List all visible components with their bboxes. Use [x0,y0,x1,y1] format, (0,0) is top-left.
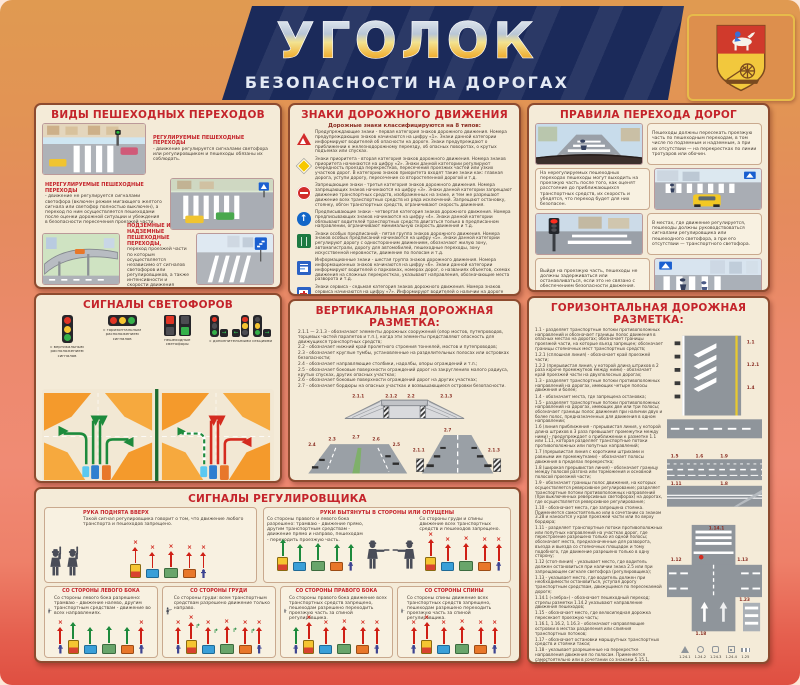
svg-text:1.11: 1.11 [671,481,682,487]
main-subtitle: БЕЗОПАСНОСТИ НА ДОРОГАХ [245,73,569,92]
rule-row-3: В местах, где движение регулируется, пеш… [535,213,762,255]
marking-diagram-intersection: 1.12 1.14.1 1.13 1.18 1.23 [667,518,762,642]
svg-text:2.6: 2.6 [372,436,380,441]
illustration-driver-view-crossing [535,123,643,165]
marking-diagram-lanes: 1.5 1.6 1.9 1.11 1.8 [667,449,762,515]
rule-row-4: Выйдя на проезжую часть, пешеходы не дол… [535,258,762,292]
controller-side-block: СО СТОРОНЫ СПИНЫ Со стороны спины движен… [397,586,511,658]
district-coat-of-arms [687,14,795,101]
sign-category-text: Знаки особых предписаний - пятая группа … [315,233,513,257]
vertical-marking-item: 2.4 - обозначает направляющие столбики, … [298,363,511,368]
horizontal-marking-item: 1.4 - обозначает места, где запрещена ос… [535,395,663,400]
legend-item: 1.24.1 [679,645,690,659]
traffic-controller-icon [401,596,405,626]
traffic-light-with-section-icon: ← [232,315,250,337]
rule-text-2: На нерегулируемых пешеходных переходах п… [535,168,650,210]
svg-text:1.23: 1.23 [739,597,750,603]
sign-icon-label [296,287,311,296]
svg-text:2.3: 2.3 [328,436,336,441]
panel-traffic-controller: СИГНАЛЫ РЕГУЛИРОВЩИКА РУКА ПОДНЯТА ВВЕРХ… [34,487,521,663]
vehicles-row [48,626,154,655]
marking-legend: 1.24.1 1.24.2 1.24.3 1.24.4 1.25 [667,645,762,659]
svg-text:1.14.1: 1.14.1 [709,526,724,532]
traffic-controller-figures [366,517,416,572]
crossing-text-unregulated: НЕРЕГУЛИРУЕМЫЕ ПЕШЕХОДНЫЕ ПЕРЕХОДЫ - дви… [42,178,166,230]
speed-bump-marking-icon [741,645,750,654]
rule-row-1: Пешеходы должны пересекать проезжую част… [535,123,762,165]
rule-text-3: В местах, где движение регулируется, пеш… [647,213,762,255]
block-text: Со стороны левого бока разрешено: трамва… [54,596,154,617]
disabled-marking-icon [727,645,736,654]
svg-text:1.2.1: 1.2.1 [747,362,759,368]
vertical-marking-list: 2.1.1 — 2.1.3 - обозначают элементы доро… [296,331,513,390]
traffic-controller-icon [48,596,52,626]
sign-icon-label [296,260,311,275]
svg-text:2.1.2: 2.1.2 [385,393,397,398]
coat-of-arms-icon [714,23,768,93]
sign-icon-label [296,234,311,249]
horizontal-marking-item: 1.2.2 (прерывистая линия, у которой длин… [535,364,663,378]
rule-row-2: На нерегулируемых пешеходных переходах п… [535,168,762,210]
traffic-controller-icon [366,538,390,572]
panel-title: ВИДЫ ПЕШЕХОДНЫХ ПЕРЕХОДОВ [42,109,274,121]
sign-icon [296,132,311,147]
panel-horizontal-marking: ГОРИЗОНТАЛЬНАЯ ДОРОЖНАЯ РАЗМЕТКА: 1.1 - … [527,296,770,664]
vertical-marking-item: 2.5 - обозначает боковые поверхности огр… [298,369,511,379]
vehicles-denied-row [419,543,507,572]
vertical-marking-item: 2.3 - обозначает круглые тумбы, установл… [298,352,511,362]
horizontal-marking-list: 1.1 - разделяет транспортные потоки прот… [535,328,663,664]
block-heading: СО СТОРОНЫ СПИНЫ [401,589,507,595]
horizontal-marking-item: 1.14.1 («зебра») - обозначает пешеходный… [535,596,663,610]
vehicles-row [401,626,507,655]
controller-side-block: СО СТОРОНЫ ПРАВОГО БОКА Со стороны право… [280,586,394,658]
block-text: Со стороны правого бока движение всех тр… [289,596,389,622]
horizontal-marking-item: 1.7 (прерывистая линия с короткими штрих… [535,450,663,464]
sign-category-row: Знаки приоритета - вторая категория знак… [296,158,513,182]
svg-text:2.1.1: 2.1.1 [413,447,425,452]
sign-category-row: Предписывающие знаки - четвертая категор… [296,211,513,230]
horizontal-marking-item: 1.3 - разделяет транспортные потоки прот… [535,379,663,393]
sign-category-text: Запрещающие знаки - третья категория зна… [315,184,513,208]
svg-text:2.4: 2.4 [308,442,316,447]
sign-icon-label [296,132,311,147]
legend-item: 1.24.2 [695,645,706,659]
pedestrian-lights-group: пешеходные светофоры [154,315,200,347]
block-text: Со стороны спины движение всех транспорт… [407,596,507,622]
controller-side-block: СО СТОРОНЫ ЛЕВОГО БОКА Со стороны левого… [44,586,158,658]
sign-category-text: Предупреждающие знаки - первая категория… [315,131,513,155]
illustration-red-light-view [535,213,643,255]
svg-text:1.8: 1.8 [720,481,728,487]
crossing-description: переход проезжей части по которым осущес… [127,247,189,289]
traffic-controller-icon [392,538,416,572]
sign-category-row: Знаки сервиса - седьмая категория знаков… [296,286,513,296]
panel-title: СИГНАЛЫ РЕГУЛИРОВЩИКА [42,493,513,505]
sign-category-row: Предупреждающие знаки - первая категория… [296,131,513,155]
marking-diagram-chevrons: 1.1 1.2.1 1.4 [667,328,762,446]
traffic-light-vertical-group: с вертикальным расположением сигналов [44,315,90,358]
controller-block-arms-extended: РУКИ ВЫТЯНУТЫ В СТОРОНЫ ИЛИ ОПУЩЕНЫ Со с… [263,507,511,583]
traffic-light-with-section-icon: → [210,315,228,337]
svg-text:1.12: 1.12 [671,557,682,563]
crossing-heading: РЕГУЛИРУЕМЫЕ ПЕШЕХОДНЫЕ ПЕРЕХОДЫ [153,136,271,148]
controller-side-block: СО СТОРОНЫ ГРУДИ Со стороны груди: всем … [162,586,276,658]
panel-title: ГОРИЗОНТАЛЬНАЯ ДОРОЖНАЯ РАЗМЕТКА: [535,302,762,326]
controller-bottom-blocks: СО СТОРОНЫ ЛЕВОГО БОКА Со стороны левого… [42,586,513,658]
illustration-regulated-crossing [42,123,146,175]
horizontal-marking-item: 1.11 - разделяет транспортные потоки про… [535,526,663,559]
svg-text:2.5: 2.5 [393,442,401,447]
title-art: УГОЛОК БЕЗОПАСНОСТИ НА ДОРОГАХ [222,6,684,100]
sign-category-text: Предписывающие знаки - четвертая категор… [315,211,513,230]
panel-title: ПРАВИЛА ПЕРЕХОДА ДОРОГ [535,109,762,121]
traffic-light-sections-group: → ← → с дополнительными секциями [209,315,272,343]
vehicles-allowed-row [267,543,363,572]
panel-title: ВЕРТИКАЛЬНАЯ ДОРОЖНАЯ РАЗМЕТКА: [296,305,513,329]
traffic-light-with-section-icon: → [253,315,271,337]
horizontal-marking-diagrams: 1.1 1.2.1 1.4 1.5 1.6 1.9 1.11 [667,328,762,664]
sign-icon [296,212,311,227]
svg-text:2.1.3: 2.1.3 [488,447,500,452]
horizontal-marking-item: 1.1 - разделяет транспортные потоки прот… [535,328,663,351]
panel-title: ЗНАКИ ДОРОЖНОГО ДВИЖЕНИЯ [296,109,513,121]
crossing-text-underground: ПОДЗЕМНЫЕ И НАДЗЕМНЫЕ ПЕШЕХОДНЫЕ ПЕРЕХОД… [124,233,192,285]
sign-category-text: Знаки сервиса - седьмая категория знаков… [315,286,513,296]
vertical-marking-diagram: 2.1.1 2.1.2 2.2 2.1.3 2.1.1 2.7 2.1.3 [296,391,513,479]
svg-text:1.9: 1.9 [720,453,728,459]
horizontal-marking-item: 1.12 (стоп-линия) - указывает место, где… [535,560,663,574]
svg-text:2.7: 2.7 [444,427,452,432]
panel-title: СИГНАЛЫ СВЕТОФОРОВ [42,299,274,311]
pedestrian-light-icon [179,315,191,336]
svg-text:1.18: 1.18 [696,631,707,637]
illustration-yellow-car-crossing [654,168,762,210]
panel-crossing-rules: ПРАВИЛА ПЕРЕХОДА ДОРОГ Пешеходы должны п… [527,103,770,292]
sign-category-row: Информационные знаки - шестая группа зна… [296,259,513,283]
sign-icon-label [296,159,311,174]
traffic-controller-icon [65,543,80,579]
title-banner: УГОЛОК БЕЗОПАСНОСТИ НА ДОРОГАХ [222,6,684,100]
traffic-controller-icon [284,596,287,626]
traffic-light-label: с вертикальным расположением сигналов [44,345,90,358]
signs-subtitle: Дорожные знаки классифицируются на 8 тип… [296,123,513,129]
sign-category-text: Знаки приоритета - вторая категория знак… [315,158,513,182]
crossing-text-regulated: РЕГУЛИРУЕМЫЕ ПЕШЕХОДНЫЕ ПЕРЕХОДЫ - движе… [150,123,274,175]
vertical-marking-item: 2.1.1 — 2.1.3 - обозначают элементы доро… [298,331,511,345]
block-heading: СО СТОРОНЫ ГРУДИ [166,589,272,595]
vertical-traffic-light-icon [62,315,73,343]
block-text-chest-back: Со стороны груди и спины движение всех т… [419,517,507,532]
traffic-controller-figures [48,511,80,579]
circle-marking-icon [696,645,705,654]
illustration-unregulated-crossing [170,178,274,230]
legend-item: 1.24.3 [710,645,721,659]
panel-crossing-types: ВИДЫ ПЕШЕХОДНЫХ ПЕРЕХОДОВ [34,103,282,289]
vertical-marking-item: 2.7 - обозначает бордюры на опасных учас… [298,385,511,390]
vehicles-denied-row [83,550,253,579]
block-heading: РУКИ ВЫТЯНУТЫ В СТОРОНЫ ИЛИ ОПУЩЕНЫ [267,510,507,516]
traffic-light-label: с горизонтальным расположением сигналов [99,328,145,341]
panel-traffic-lights: СИГНАЛЫ СВЕТОФОРОВ с вертикальным распол… [34,293,282,483]
svg-text:1.13: 1.13 [737,557,748,563]
horizontal-marking-item: 1.13 - указывает место, где водитель дол… [535,576,663,595]
panel-vertical-marking: ВЕРТИКАЛЬНАЯ ДОРОЖНАЯ РАЗМЕТКА: 2.1.1 — … [288,299,521,482]
svg-text:2.1.1: 2.1.1 [352,393,364,398]
yield-marking-icon [680,645,689,654]
vehicles-row [166,626,272,655]
block-heading: СО СТОРОНЫ ЛЕВОГО БОКА [48,589,154,595]
horizontal-marking-item: 1.8 (широкая прерывистая линия) - обозна… [535,466,663,480]
safety-corner-board: УГОЛОК БЕЗОПАСНОСТИ НА ДОРОГАХ [0,0,800,685]
horizontal-marking-item: 1.16.1, 1.16.2, 1.16.3 - обозначают напр… [535,622,663,636]
illustration-overpass [42,233,120,285]
crossing-description: - движение не регулируется сигналами све… [45,194,163,225]
svg-text:1.6: 1.6 [696,453,704,459]
vehicles-row [284,626,390,655]
rule-text-4: Выйдя на проезжую часть, пешеходы не дол… [535,258,650,292]
rule-text-1: Пешеходы должны пересекать проезжую част… [647,123,762,165]
horizontal-marking-item: 1.2.1 (сплошная линия) - обозначает край… [535,353,663,362]
sign-category-row: Знаки особых предписаний - пятая группа … [296,233,513,257]
sign-icon [296,260,311,275]
sign-icon [296,159,311,174]
block-heading: СО СТОРОНЫ ПРАВОГО БОКА [284,589,390,595]
pedestrian-light-icon [164,315,176,336]
panel-road-signs: ЗНАКИ ДОРОЖНОГО ДВИЖЕНИЯ Дорожные знаки … [288,103,521,296]
intersection-signals-diagram [42,389,274,483]
svg-text:2.1.3: 2.1.3 [440,393,452,398]
horizontal-marking-item: 1.15 - обозначает место, где велосипедна… [535,611,663,620]
sign-icon-label [296,185,311,200]
sign-category-row: Запрещающие знаки - третья категория зна… [296,184,513,208]
crossing-description: - движение регулируется сигналами светоф… [153,147,271,162]
sign-category-text: Информационные знаки - шестая группа зна… [315,259,513,283]
horizontal-marking-item: 1.18 - указывает разрешенные на перекрес… [535,648,663,664]
horizontal-marking-item: 1.5 - разделяет транспортные потоки прот… [535,401,663,424]
controller-block-hand-raised: РУКА ПОДНЯТА ВВЕРХ Такой сигнал регулиро… [44,507,257,583]
main-title: УГОЛОК [276,12,538,70]
horizontal-marking-item: 1.17 - обозначает остановки маршрутных т… [535,638,663,647]
svg-text:1.4: 1.4 [747,385,755,391]
horizontal-marking-item: 1.6 (линия приближения - прерывистая лин… [535,425,663,448]
crossing-row-regulated: РЕГУЛИРУЕМЫЕ ПЕШЕХОДНЫЕ ПЕРЕХОДЫ - движе… [42,123,274,175]
traffic-light-types: с вертикальным расположением сигналов с … [42,313,274,389]
sign-icon [296,287,311,296]
svg-text:1.1: 1.1 [747,339,755,345]
svg-text:1.5: 1.5 [671,453,679,459]
crossing-row-underground: ПОДЗЕМНЫЕ И НАДЗЕМНЫЕ ПЕШЕХОДНЫЕ ПЕРЕХОД… [42,233,274,285]
legend-item: 1.25 [741,645,750,659]
traffic-controller-icon [166,596,172,626]
crossing-row-unregulated: НЕРЕГУЛИРУЕМЫЕ ПЕШЕХОДНЫЕ ПЕРЕХОДЫ - дви… [42,178,274,230]
sign-duplicate-marking-icon [711,645,720,654]
svg-text:2.2: 2.2 [407,393,415,398]
signs-list: Предупреждающие знаки - первая категория… [296,131,513,296]
sign-icon-label [296,212,311,227]
horizontal-marking-item: 1.9 - обозначает границы полос движения,… [535,481,663,504]
block-text: Такой сигнал регулировщика говорит о том… [83,517,253,527]
illustration-underpass-sign [196,233,274,285]
traffic-light-label: с дополнительными секциями [209,339,272,343]
traffic-controller-icon [48,543,63,579]
svg-text:2.7: 2.7 [352,435,360,440]
block-text: Со стороны груди: всем транспортным сред… [174,596,272,611]
illustration-pedestrians-crossing [654,258,762,292]
horizontal-traffic-light-icon [108,315,137,326]
traffic-light-label: пешеходные светофоры [154,338,200,347]
crossing-heading: НЕРЕГУЛИРУЕМЫЕ ПЕШЕХОДНЫЕ ПЕРЕХОДЫ [45,183,163,195]
traffic-light-horizontal-group: с горизонтальным расположением сигналов [99,315,145,341]
sign-icon [296,185,311,200]
legend-item: 1.24.4 [725,645,736,659]
sign-icon [296,234,311,249]
crossing-heading: ПОДЗЕМНЫЕ И НАДЗЕМНЫЕ ПЕШЕХОДНЫЕ ПЕРЕХОД… [127,224,189,247]
horizontal-marking-item: 1.10 - обозначает места, где запрещена с… [535,506,663,525]
